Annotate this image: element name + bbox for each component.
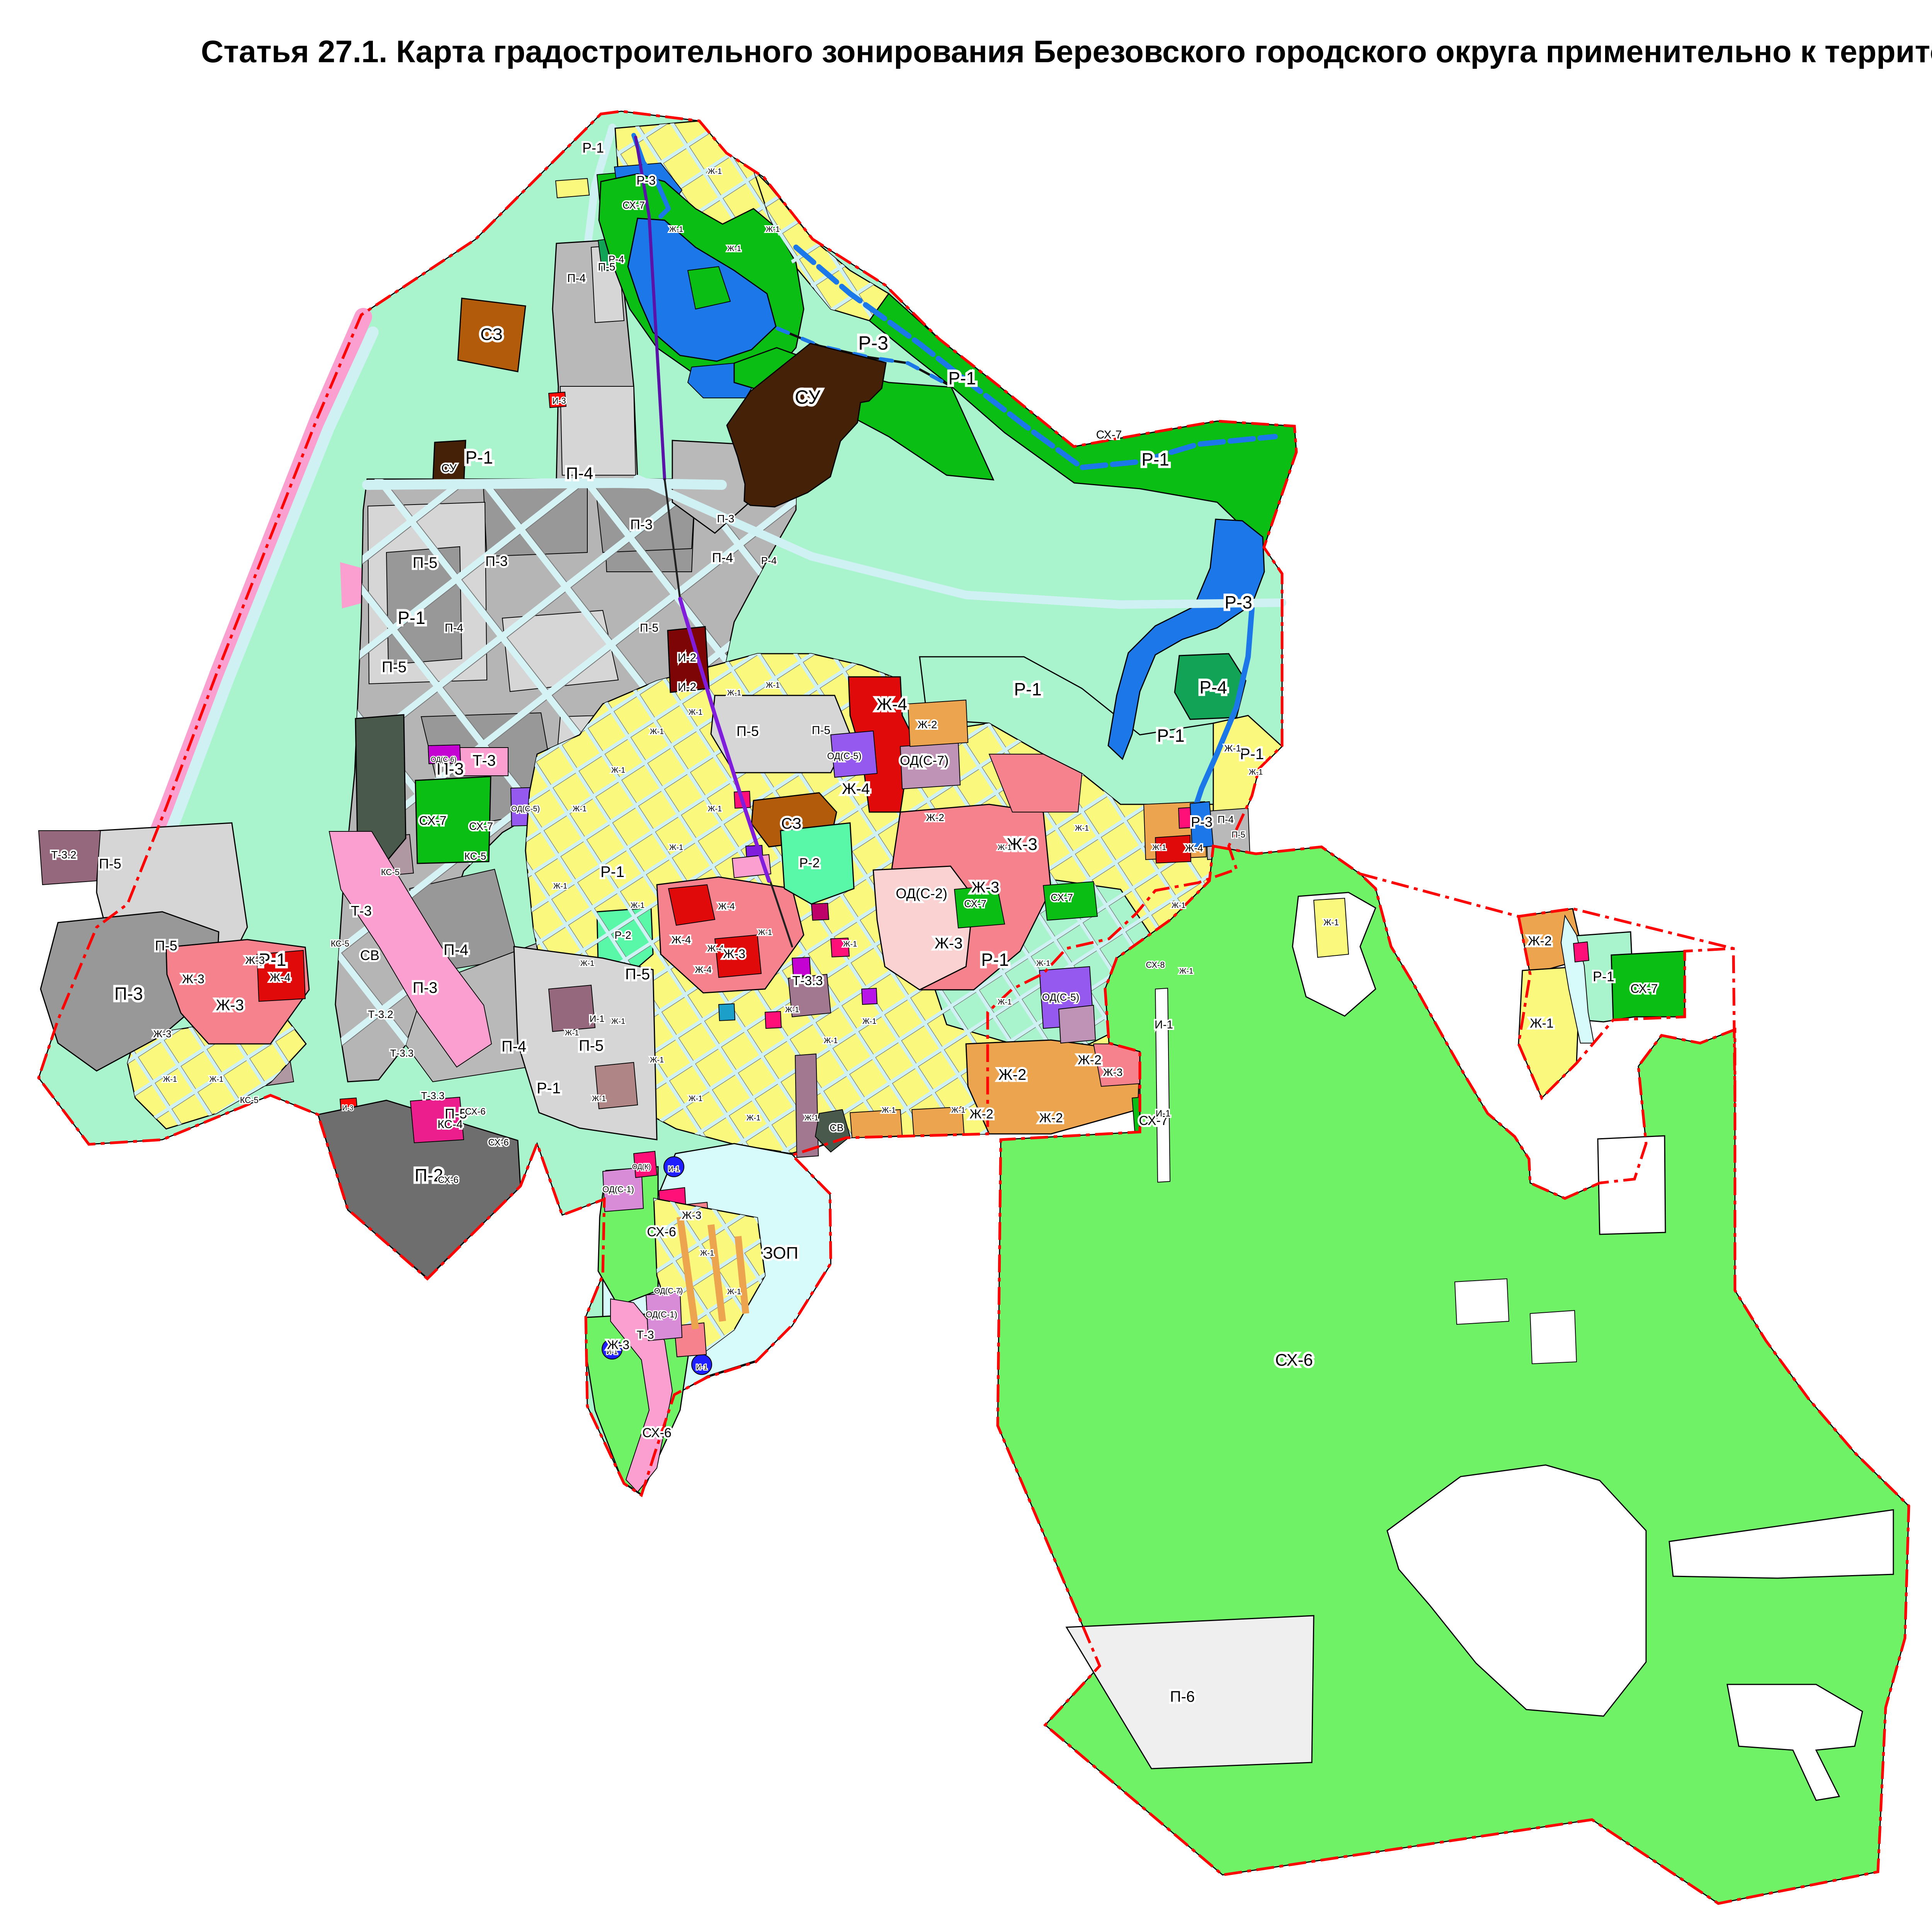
svg-text:П-5: П-5 — [812, 724, 830, 737]
svg-text:П-5: П-5 — [382, 659, 406, 676]
svg-text:СХ-7: СХ-7 — [622, 199, 645, 211]
svg-text:Ж-4: Ж-4 — [672, 934, 691, 946]
svg-text:П-5: П-5 — [99, 856, 121, 872]
svg-text:И-1: И-1 — [1156, 1108, 1171, 1119]
svg-text:Ж-1: Ж-1 — [573, 805, 587, 813]
svg-text:П-5: П-5 — [736, 723, 759, 739]
svg-text:СХ-7: СХ-7 — [419, 814, 446, 828]
svg-text:Ж-1: Ж-1 — [611, 1017, 625, 1026]
svg-text:ОД(С-5): ОД(С-5) — [827, 751, 861, 761]
svg-text:П-4: П-4 — [567, 272, 586, 285]
svg-text:Ж-1: Ж-1 — [727, 1288, 741, 1296]
svg-text:КС-5: КС-5 — [331, 939, 349, 948]
svg-text:Ж-1: Ж-1 — [785, 1006, 799, 1014]
svg-text:ОД(С-1): ОД(С-1) — [646, 1310, 677, 1319]
svg-text:П-4: П-4 — [1218, 814, 1234, 825]
svg-text:Ж-2: Ж-2 — [918, 719, 937, 731]
svg-text:СХ-8: СХ-8 — [1146, 960, 1165, 970]
svg-text:Ж-1: Ж-1 — [824, 1037, 838, 1045]
svg-text:КС-4: КС-4 — [437, 1118, 463, 1131]
svg-text:Ж-1: Ж-1 — [1530, 1016, 1554, 1031]
svg-text:П-4: П-4 — [712, 551, 733, 565]
svg-text:Ж-3: Ж-3 — [216, 997, 244, 1014]
svg-text:Ж-1: Ж-1 — [209, 1075, 223, 1084]
svg-text:И-2: И-2 — [678, 651, 696, 664]
svg-text:Ж-1: Ж-1 — [766, 681, 780, 690]
svg-text:Ж-1: Ж-1 — [727, 689, 741, 697]
svg-text:Ж-3: Ж-3 — [153, 1028, 171, 1040]
svg-text:Ж-2: Ж-2 — [926, 812, 944, 823]
svg-text:Ж-1: Ж-1 — [998, 843, 1012, 852]
svg-text:Ж-4: Ж-4 — [695, 965, 712, 975]
svg-text:Ж-1: Ж-1 — [708, 805, 722, 813]
svg-text:П-4: П-4 — [444, 942, 468, 958]
svg-text:Р-2: Р-2 — [614, 929, 631, 941]
svg-text:СХ-6: СХ-6 — [642, 1426, 672, 1440]
svg-text:П-5: П-5 — [155, 938, 177, 953]
svg-text:Ж-3: Ж-3 — [723, 947, 745, 961]
svg-text:Ж-1: Ж-1 — [1172, 901, 1185, 910]
svg-text:Р-3: Р-3 — [636, 173, 656, 187]
svg-text:Ж-1: Ж-1 — [1036, 959, 1050, 968]
svg-text:П-5: П-5 — [640, 622, 658, 634]
svg-text:СХ-6: СХ-6 — [465, 1106, 485, 1117]
svg-text:Р-2: Р-2 — [799, 856, 820, 870]
svg-text:Ж-2: Ж-2 — [969, 1107, 993, 1122]
svg-text:ОД(С-6): ОД(С-6) — [431, 756, 457, 763]
svg-text:Ж-1: Ж-1 — [650, 727, 664, 736]
svg-text:Т-3.3: Т-3.3 — [421, 1090, 445, 1101]
svg-text:ОД(К): ОД(К) — [632, 1163, 651, 1171]
svg-text:Ж-4: Ж-4 — [842, 780, 870, 797]
svg-text:СХ-7: СХ-7 — [1051, 892, 1073, 903]
svg-text:П-3: П-3 — [630, 517, 653, 532]
svg-text:Т-3.2: Т-3.2 — [368, 1008, 393, 1020]
svg-text:Ж-1: Ж-1 — [592, 1094, 606, 1103]
svg-text:Ж-1: Ж-1 — [1249, 768, 1263, 777]
svg-text:Ж-1: Ж-1 — [580, 959, 594, 968]
svg-text:Р-1: Р-1 — [1593, 969, 1614, 984]
svg-text:СУ: СУ — [441, 462, 457, 475]
svg-text:КС-5: КС-5 — [464, 850, 486, 862]
svg-text:СХ-6: СХ-6 — [1275, 1351, 1313, 1370]
svg-text:Ж-1: Ж-1 — [689, 1094, 702, 1103]
svg-text:Ж-1: Ж-1 — [998, 998, 1012, 1006]
svg-text:П-3: П-3 — [485, 553, 508, 569]
svg-text:Ж-3: Ж-3 — [1103, 1066, 1123, 1078]
svg-text:П-6: П-6 — [1170, 1688, 1195, 1705]
svg-text:Ж-1: Ж-1 — [882, 1106, 896, 1115]
svg-text:Ж-1: Ж-1 — [862, 1017, 876, 1026]
svg-text:Ж-1: Ж-1 — [1152, 843, 1166, 852]
svg-text:Ж-2: Ж-2 — [1039, 1111, 1063, 1125]
svg-text:Т-3.3: Т-3.3 — [390, 1047, 414, 1059]
svg-text:П-5: П-5 — [579, 1037, 604, 1054]
svg-text:Ж-1: Ж-1 — [1323, 918, 1339, 927]
svg-text:Ж-1: Ж-1 — [1224, 743, 1241, 754]
svg-text:ОД(С-5): ОД(С-5) — [511, 805, 540, 813]
svg-text:Р-1: Р-1 — [1157, 726, 1185, 746]
svg-text:П-3: П-3 — [413, 979, 437, 996]
svg-text:И-2: И-2 — [678, 681, 696, 693]
svg-text:И-3: И-3 — [342, 1104, 354, 1112]
svg-text:П-5: П-5 — [1231, 830, 1245, 840]
svg-text:СХ-7: СХ-7 — [469, 820, 493, 832]
svg-text:Т-3.3: Т-3.3 — [792, 974, 823, 988]
svg-text:Ж-4: Ж-4 — [707, 943, 724, 954]
svg-text:Ж-2: Ж-2 — [998, 1066, 1027, 1083]
svg-text:Ж-3: Ж-3 — [607, 1338, 629, 1352]
svg-text:Р-1: Р-1 — [537, 1080, 561, 1097]
svg-text:И-1: И-1 — [696, 1363, 707, 1371]
svg-text:СХ-6: СХ-6 — [488, 1137, 509, 1148]
svg-text:Ж-1: Ж-1 — [611, 766, 625, 775]
svg-text:Ж-1: Ж-1 — [689, 708, 702, 717]
svg-text:Ж-3: Ж-3 — [182, 972, 204, 986]
svg-text:Ж-1: Ж-1 — [669, 225, 683, 234]
svg-text:КС-5: КС-5 — [240, 1095, 259, 1105]
svg-text:ОД(С-5): ОД(С-5) — [1042, 991, 1079, 1003]
svg-text:Р-1: Р-1 — [398, 608, 425, 628]
svg-text:Ж-4: Ж-4 — [270, 971, 291, 984]
svg-text:Ж-1: Ж-1 — [727, 245, 741, 253]
svg-text:Ж-1: Ж-1 — [669, 843, 683, 852]
svg-text:СВ: СВ — [360, 947, 379, 963]
svg-text:Ж-3: Ж-3 — [935, 935, 963, 952]
svg-text:Р-4: Р-4 — [761, 555, 777, 566]
svg-text:Ж-1: Ж-1 — [163, 1075, 177, 1084]
svg-text:Ж-1: Ж-1 — [708, 167, 722, 176]
svg-text:Р-3: Р-3 — [858, 332, 888, 354]
svg-text:Ж-1: Ж-1 — [758, 928, 772, 937]
svg-text:Р-1: Р-1 — [582, 140, 604, 156]
svg-text:Р-1: Р-1 — [1141, 449, 1169, 469]
svg-text:П-3: П-3 — [114, 984, 143, 1004]
svg-text:Ж-1: Ж-1 — [650, 1056, 664, 1064]
svg-text:Ж-2: Ж-2 — [1078, 1053, 1102, 1067]
svg-text:П-4: П-4 — [445, 622, 463, 634]
svg-text:Р-3: Р-3 — [1191, 814, 1213, 830]
svg-text:Ж-1: Ж-1 — [766, 225, 780, 234]
svg-text:Р-1: Р-1 — [600, 863, 624, 880]
svg-text:Р-1: Р-1 — [948, 368, 976, 388]
svg-text:СХ-6: СХ-6 — [438, 1175, 458, 1185]
svg-text:ОД(С-1): ОД(С-1) — [602, 1185, 634, 1194]
svg-text:Р-3: Р-3 — [1225, 592, 1252, 612]
svg-text:СХ-7: СХ-7 — [964, 898, 986, 909]
svg-text:ОД(С-7): ОД(С-7) — [900, 753, 949, 768]
svg-text:Т-3: Т-3 — [473, 752, 496, 769]
svg-text:Ж-1: Ж-1 — [553, 882, 567, 891]
svg-text:Ж-3: Ж-3 — [971, 879, 1000, 896]
svg-text:Ж-1: Ж-1 — [631, 901, 645, 910]
svg-text:И-1: И-1 — [668, 1165, 680, 1173]
svg-text:ЗОП: ЗОП — [763, 1244, 798, 1263]
svg-text:СХ-6: СХ-6 — [647, 1225, 676, 1239]
svg-text:Ж-4: Ж-4 — [1185, 842, 1203, 854]
svg-text:Ж-1: Ж-1 — [1075, 824, 1089, 833]
svg-text:Ж-3: Ж-3 — [682, 1209, 702, 1221]
svg-text:Ж-2: Ж-2 — [1528, 934, 1552, 948]
svg-text:Ж-1: Ж-1 — [804, 1114, 818, 1122]
svg-text:СВ: СВ — [830, 1122, 844, 1134]
svg-text:П-4: П-4 — [502, 1038, 526, 1055]
svg-text:Р-4: Р-4 — [1199, 677, 1227, 697]
svg-text:Р-1: Р-1 — [1240, 746, 1264, 763]
svg-text:Т-3.2: Т-3.2 — [51, 849, 76, 861]
svg-text:П-3: П-3 — [717, 513, 734, 525]
svg-text:Ж-4: Ж-4 — [876, 695, 907, 714]
svg-text:Статья 27.1. Карта градостроит: Статья 27.1. Карта градостроительного зо… — [201, 34, 1932, 69]
svg-text:Ж-4: Ж-4 — [718, 901, 735, 912]
svg-text:СЗ: СЗ — [781, 815, 802, 832]
svg-text:Т-3: Т-3 — [351, 903, 372, 919]
svg-text:Ж-1: Ж-1 — [565, 1029, 579, 1037]
svg-text:СЗ: СЗ — [480, 325, 503, 344]
svg-text:Р-1: Р-1 — [981, 950, 1009, 970]
svg-text:И-3: И-3 — [552, 396, 566, 406]
svg-text:Ж-1: Ж-1 — [843, 940, 857, 948]
svg-text:Р-1: Р-1 — [1014, 679, 1042, 699]
svg-text:СХ-7: СХ-7 — [1096, 428, 1122, 441]
svg-text:Ж-1: Ж-1 — [700, 1249, 714, 1258]
svg-text:П-5: П-5 — [598, 261, 615, 273]
svg-text:ОД(С-2): ОД(С-2) — [896, 885, 947, 901]
svg-text:СУ: СУ — [795, 386, 820, 408]
svg-text:Ж-3: Ж-3 — [245, 954, 265, 966]
svg-text:Р-1: Р-1 — [465, 447, 493, 467]
svg-text:Ж-1: Ж-1 — [1179, 967, 1193, 975]
svg-text:Ж-1: Ж-1 — [951, 1106, 965, 1115]
svg-text:СХ-7: СХ-7 — [1630, 982, 1658, 996]
svg-text:П-4: П-4 — [566, 464, 594, 483]
svg-text:П-5: П-5 — [625, 966, 650, 983]
svg-text:П-5: П-5 — [413, 554, 437, 571]
svg-text:Ж-1: Ж-1 — [747, 1114, 760, 1122]
svg-text:ОД(С-7): ОД(С-7) — [654, 1287, 683, 1295]
svg-text:КС-5: КС-5 — [381, 867, 400, 877]
svg-text:Т-3: Т-3 — [637, 1329, 654, 1341]
svg-text:И-1: И-1 — [1155, 1018, 1173, 1031]
svg-text:И-1: И-1 — [590, 1014, 605, 1024]
